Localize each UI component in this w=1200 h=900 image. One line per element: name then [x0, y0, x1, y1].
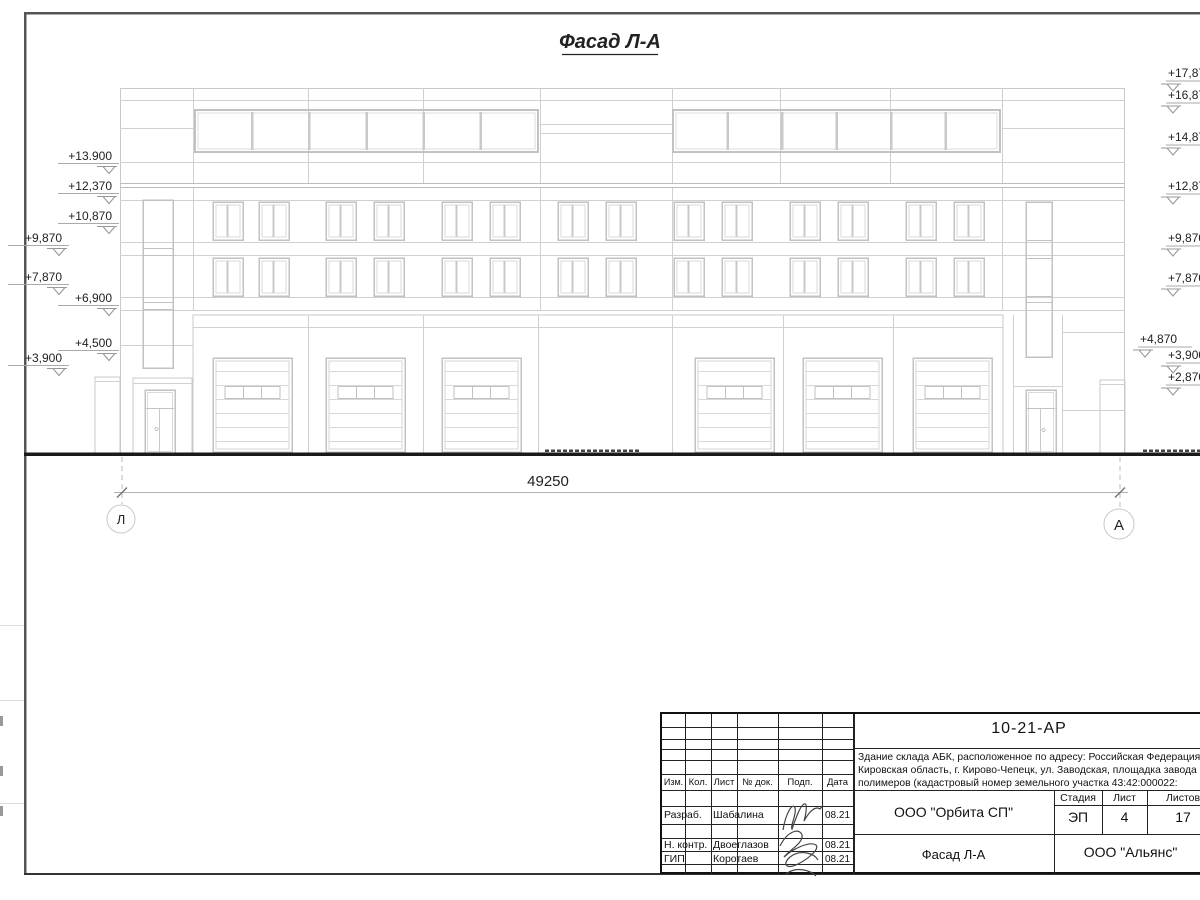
- project-description-line3: полимеров (кадастровый номер земельного …: [858, 777, 1178, 790]
- col-header-izm: Изм.: [662, 776, 685, 789]
- elevation-label: +12,870: [1168, 179, 1200, 193]
- role-label: Н. контр.: [664, 839, 707, 852]
- col-header-list: Лист: [711, 776, 737, 789]
- project-description-line1: Здание склада АБК, расположенное по адре…: [858, 751, 1200, 764]
- title-block: Изм. Кол. Лист № док. Подп. Дата Разраб.…: [660, 712, 1200, 874]
- contractor-org: ООО "Альянс": [1054, 846, 1200, 859]
- dimension-label: 49250: [527, 473, 569, 490]
- elevation-label: +3,900: [1168, 348, 1200, 362]
- elevation-label: +13.900: [68, 149, 112, 163]
- col-header-data: Дата: [822, 776, 853, 789]
- elevation-label: +7,870: [1168, 271, 1200, 285]
- axis-bubble-A: А: [1114, 517, 1124, 534]
- elevation-label: +3,900: [25, 351, 62, 365]
- dimension-and-axes: 49250ЛА: [107, 457, 1134, 539]
- role-date: 08.21: [822, 839, 853, 852]
- building-facade: [24, 88, 1200, 454]
- role-label: Разраб.: [664, 809, 702, 822]
- role-label: ГИП: [664, 853, 685, 866]
- role-name: Шабалина: [713, 809, 764, 822]
- sheet-number: 4: [1102, 811, 1147, 824]
- col-header-podp: Подп.: [778, 776, 822, 789]
- role-name: Двоеглазов: [713, 839, 769, 852]
- sheet-title-cell: Фасад Л-А: [853, 848, 1054, 861]
- sheet-count: 17: [1147, 811, 1200, 824]
- elevation-label: +16,870: [1168, 88, 1200, 102]
- stage-value: ЭП: [1054, 811, 1102, 824]
- elevation-label: +9,870: [25, 231, 62, 245]
- page-title: Фасад Л-А: [559, 31, 661, 53]
- elevation-label: +7,870: [25, 270, 62, 284]
- elevation-label: +17,870: [1168, 66, 1200, 80]
- elevation-label: +12,370: [68, 179, 112, 193]
- elevation-label: +14,870: [1168, 130, 1200, 144]
- role-date: 08.21: [822, 853, 853, 866]
- design-org: ООО "Орбита СП": [853, 806, 1054, 819]
- elevation-label: +4,870: [1140, 332, 1177, 346]
- axis-bubble-L: Л: [117, 512, 126, 527]
- sheet-header: Лист: [1102, 792, 1147, 805]
- col-header-ndok: № док.: [737, 776, 778, 789]
- elevation-label: +6,900: [75, 291, 112, 305]
- doc-number: 10-21-АР: [853, 722, 1200, 735]
- elevation-label: +4,500: [75, 336, 112, 350]
- signature-scribble: [772, 826, 826, 882]
- elevation-label: +10,870: [68, 209, 112, 223]
- stage-header: Стадия: [1054, 792, 1102, 805]
- sheets-header: Листов: [1147, 792, 1200, 805]
- role-date: 08.21: [822, 809, 853, 822]
- col-header-kol: Кол.: [685, 776, 711, 789]
- project-description-line2: Кировская область, г. Кирово-Чепецк, ул.…: [858, 764, 1197, 777]
- sheet-heading: Фасад Л-А: [559, 31, 661, 55]
- role-name: Коротаев: [713, 853, 758, 866]
- drawing-sheet: { "sheet": { "title": "Фасад Л-А", "dime…: [0, 0, 1200, 900]
- elevation-label: +9,870: [1168, 231, 1200, 245]
- elevation-label: +2,870: [1168, 370, 1200, 384]
